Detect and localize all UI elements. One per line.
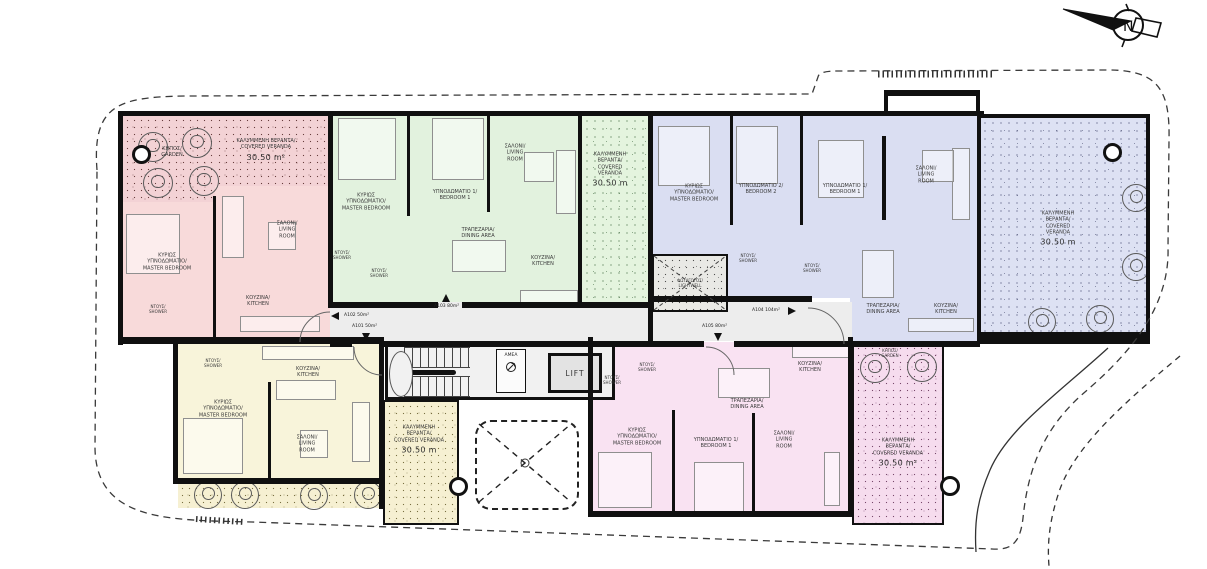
label-a102-veranda: ΚΑΛΥΜΜΕΝΗ ΒΕΡΑΝΤΑ/ COVERED VERANDA 30.50… [237,138,296,163]
label-en: GARDEN [881,353,898,358]
label-gr: ΚΥΡΙΩΣ ΥΠΝΟΔΩΜΑΤΙΟ/ [194,400,252,413]
label-lightwell: ΦΩΤΑΓΩΓΟΣ/ LIGHTWELL [677,278,703,288]
label-a104-master: ΚΥΡΙΩΣ ΥΠΝΟΔΩΜΑΤΙΟ/ MASTER BEDROOM [665,184,723,203]
planter-pot [189,166,219,196]
wall [650,296,812,302]
entrance-arrow-a104 [788,307,796,315]
label-a104-veranda: ΚΑΛΥΜΜΕΝΗ ΒΕΡΑΝΤΑ/ COVERED VERANDA 30.50… [1037,211,1079,248]
label-en: SHOWER [149,309,167,314]
label-en: KITCHEN [296,372,320,378]
planter-pot [231,481,259,509]
label-en: SHOWER [333,255,351,260]
label-area: 30.50 m² [870,458,926,468]
bed [658,126,710,186]
wall [173,478,384,484]
label-a104-bedroom2: ΥΠΝΟΔΩΜΑΤΙΟ 2/ BEDROOM 2 [739,183,783,196]
wall [648,111,653,345]
label-en: SHOWER [204,363,222,368]
label-a103-dining: ΤΡΑΠΕΖΑΡΙΑ/ DINING AREA [461,227,494,240]
kitchen-island [276,380,336,400]
label-en: DINING AREA [730,404,763,410]
label-a103-kitchen: ΚΟΥΖΙΝΑ/ KITCHEN [531,255,555,268]
accessible-wc-label: ΑΜΕΑ [497,353,525,358]
label-en: BEDROOM 1 [823,189,867,195]
planter-pot [354,481,382,509]
label-en: COVERED VERANDA [393,437,445,443]
planter-pot [907,352,937,382]
entrance-arrow-a101 [362,333,370,341]
label-gr: ΚΥΡΙΩΣ ΥΠΝΟΔΩΜΑΤΙΟ/ [138,253,196,266]
wall [848,337,853,517]
label-en: GARDEN [161,152,183,158]
label-en: LIVING ROOM [292,441,322,454]
label-a102-living: ΣΑΛΟΝΙ/ LIVING ROOM [272,221,302,240]
label-a103-shower2: ΝΤΟΥΣ/ SHOWER [370,268,388,278]
floor-plan: ΑΜΕΑ LIFT A102 50m² A101 50m² A103 80m² … [0,0,1207,569]
planter-pot [300,482,328,510]
wall [118,111,123,345]
entrance-arrow-a103 [442,294,450,302]
label-a105-veranda: ΚΑΛΥΜΜΕΝΗ ΒΕΡΑΝΤΑ/ COVERED VERANDA 30.50… [870,438,926,469]
label-a105-shower2: ΝΤΟΥΣ/ SHOWER [638,362,656,372]
bed [736,126,778,184]
label-en: KITCHEN [531,261,555,267]
path-curve-dashed [1048,356,1180,566]
planter-pot-bold [449,477,468,496]
label-en: MASTER BEDROOM [194,412,252,418]
wall [852,341,980,347]
label-en: LIVING ROOM [769,437,799,450]
label-gr: ΚΥΡΙΩΣ ΥΠΝΟΔΩΜΑΤΙΟ/ [665,184,723,197]
label-a105-shower1: ΝΤΟΥΣ/ SHOWER [603,375,621,385]
wall [980,114,1148,118]
north-arrow: N [1063,4,1161,47]
accessible-wc: ΑΜΕΑ [496,349,526,393]
label-a105-living: ΣΑΛΟΝΙ/ LIVING ROOM [769,431,799,450]
label-en: LIVING ROOM [911,172,941,185]
label-en: KITCHEN [798,367,822,373]
planter-pot [194,481,222,509]
label-a103-living: ΣΑΛΟΝΙ/ LIVING ROOM [500,144,530,163]
bed [432,118,484,180]
label-a105-kitchen: ΚΟΥΖΙΝΑ/ KITCHEN [798,361,822,374]
kitchen-counter [262,346,354,360]
wall [173,337,178,483]
planter-pot [1086,305,1114,333]
sofa [222,196,244,258]
label-en: COVERED VERANDA [1037,223,1079,236]
wall [487,113,490,212]
label-en: KITCHEN [934,309,958,315]
building-core: ΑΜΕΑ LIFT [385,342,615,400]
lift: LIFT [548,353,602,393]
label-gr: ΚΑΛΥΜΜΕΝΗ ΒΕΡΑΝΤΑ/ [393,425,445,438]
bed [338,118,396,180]
label-en: LIGHTWELL [677,283,703,288]
sofa [556,150,576,214]
path-curve-solid [976,348,1108,552]
bed [183,418,243,474]
entrance-arrow-a105 [714,333,722,341]
wall [882,136,886,220]
dining-table [862,250,894,298]
label-a105-master: ΚΥΡΙΩΣ ΥΠΝΟΔΩΜΑΤΙΟ/ MASTER BEDROOM [608,428,666,447]
wall [734,341,852,347]
wall [1146,114,1150,344]
entrance-arrow-a102 [331,312,339,320]
label-en: DINING AREA [866,309,899,315]
label-area: 30.50 m [587,179,633,189]
label-a104-dining: ΤΡΑΠΕΖΑΡΙΑ/ DINING AREA [866,303,899,316]
planter-pot-bold [132,145,151,164]
planter-pot-bold [940,476,960,496]
label-gr: ΚΑΛΥΜΜΕΝΗ ΒΕΡΑΝΤΑ/ [1037,211,1079,224]
entrance-label-a101: A101 50m² [352,324,377,329]
lift-label: LIFT [565,369,584,378]
label-en: MASTER BEDROOM [608,440,666,446]
label-en: MASTER BEDROOM [665,196,723,202]
label-en: BEDROOM 2 [739,189,783,195]
label-a104-kitchen: ΚΟΥΖΙΝΑ/ KITCHEN [934,303,958,316]
wall [382,341,704,347]
label-a103-master: ΚΥΡΙΩΣ ΥΠΝΟΔΩΜΑΤΙΟ/ MASTER BEDROOM [337,193,395,212]
wall [980,332,1150,344]
planter-pot [182,128,212,158]
hatch-band [196,519,244,522]
entrance-label-a102: A102 50m² [344,313,369,318]
label-en: LIVING ROOM [272,227,302,240]
label-gr: ΚΑΛΥΜΜΕΝΗ ΒΕΡΑΝΤΑ/ [587,152,633,165]
label-en: KITCHEN [246,301,270,307]
staircase [392,347,472,397]
label-en: SHOWER [370,273,388,278]
wall [118,111,984,116]
label-area: 30.50 m² [237,152,296,162]
wall [588,337,593,517]
wall [730,113,733,225]
label-a101-living: ΣΑΛΟΝΙ/ LIVING ROOM [292,435,322,454]
label-gr: ΚΥΡΙΩΣ ΥΠΝΟΔΩΜΑΤΙΟ/ [608,428,666,441]
open-shaft [475,420,579,510]
bed [598,452,652,508]
wall [884,90,980,96]
label-a104-shower2: ΝΤΟΥΣ/ SHOWER [803,263,821,273]
label-a105-dining: ΤΡΑΠΕΖΑΡΙΑ/ DINING AREA [730,398,763,411]
wall [752,413,755,511]
label-a102-garden: ΚΗΠΟΣ/ GARDEN [161,146,183,159]
entrance-label-a104: A104 104m² [752,308,780,313]
compass-n: N [1123,19,1133,35]
dining-table [718,368,770,398]
dining-table [452,240,506,272]
planter-pot-bold [1103,143,1122,162]
wall [588,511,853,517]
label-a101-veranda: ΚΑΛΥΜΜΕΝΗ ΒΕΡΑΝΤΑ/ COVERED VERANDA 30.50… [393,425,445,456]
stair-treads [404,347,470,368]
label-en: BEDROOM 1 [694,443,738,449]
accessible-wc-icon [504,359,518,373]
label-a104-bedroom1: ΥΠΝΟΔΩΜΑΤΙΟ 1/ BEDROOM 1 [823,183,867,196]
label-en: MASTER BEDROOM [138,265,196,271]
sofa [952,148,970,220]
kitchen-counter [240,316,320,332]
label-area: 30.50 m [1037,238,1079,248]
label-a104-living: ΣΑΛΟΝΙ/ LIVING ROOM [911,166,941,185]
wall [330,302,438,308]
wall [268,382,271,478]
entrance-label-a105: A105 80m² [702,324,727,329]
stair-curve [389,351,413,397]
label-a104-shower1: ΝΤΟΥΣ/ SHOWER [739,253,757,263]
wall [672,410,675,511]
wall [213,196,216,339]
label-en: MASTER BEDROOM [337,205,395,211]
label-en: BEDROOM 1 [433,195,477,201]
label-a105-garden: ΚΗΠΟΣ/ GARDEN [881,348,898,358]
label-a101-master: ΚΥΡΙΩΣ ΥΠΝΟΔΩΜΑΤΙΟ/ MASTER BEDROOM [194,400,252,419]
label-en: COVERED VERANDA [237,144,296,150]
label-a102-master: ΚΥΡΙΩΣ ΥΠΝΟΔΩΜΑΤΙΟ/ MASTER BEDROOM [138,253,196,272]
label-a102-kitchen: ΚΟΥΖΙΝΑ/ KITCHEN [246,295,270,308]
label-a105-bedroom1: ΥΠΝΟΔΩΜΑΤΙΟ 1/ BEDROOM 1 [694,437,738,450]
label-a103-bedroom1: ΥΠΝΟΔΩΜΑΤΙΟ 1/ BEDROOM 1 [433,189,477,202]
label-en: COVERED VERANDA [870,450,926,456]
label-a101-kitchen: ΚΟΥΖΙΝΑ/ KITCHEN [296,366,320,379]
wall [578,113,582,305]
entrance-label-a103: A103 80m² [434,304,459,309]
label-en: SHOWER [638,367,656,372]
label-a103-veranda: ΚΑΛΥΜΜΕΝΗ ΒΕΡΑΝΤΑ/ COVERED VERANDA 30.50… [587,152,633,189]
kitchen-counter [908,318,974,332]
a101-veranda-region [383,400,459,525]
wall [800,113,803,225]
wall [976,90,980,115]
label-en: SHOWER [739,258,757,263]
a103-veranda-region [582,116,648,303]
wall [884,90,888,113]
label-gr: ΚΥΡΙΩΣ ΥΠΝΟΔΩΜΑΤΙΟ/ [337,193,395,206]
stair-treads [404,376,470,397]
wall [330,341,352,347]
bed [694,462,744,514]
label-en: DINING AREA [461,233,494,239]
label-en: COVERED VERANDA [587,164,633,177]
label-gr: ΚΑΛΥΜΜΕΝΗ ΒΕΡΑΝΤΑ/ [870,438,926,451]
planter-pot [143,168,173,198]
wall [462,302,652,308]
label-en: SHOWER [803,268,821,273]
wall [407,113,410,216]
label-a102-shower: ΝΤΟΥΣ/ SHOWER [149,304,167,314]
sofa [824,452,840,506]
sofa [352,402,370,462]
label-a101-shower: ΝΤΟΥΣ/ SHOWER [204,358,222,368]
label-en: SHOWER [603,380,621,385]
wall [977,114,981,342]
label-a103-shower1: ΝΤΟΥΣ/ SHOWER [333,250,351,260]
label-en: LIVING ROOM [500,150,530,163]
wall [328,111,333,308]
label-area: 30.50 m [393,445,445,455]
